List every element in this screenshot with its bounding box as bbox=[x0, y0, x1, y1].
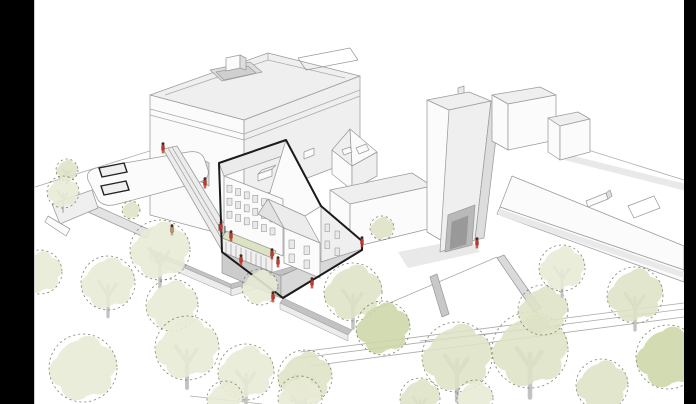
window bbox=[304, 260, 310, 269]
window bbox=[270, 228, 275, 235]
window bbox=[236, 202, 241, 209]
window bbox=[227, 211, 232, 218]
window bbox=[244, 218, 249, 225]
frame-right-bar bbox=[684, 0, 696, 404]
window bbox=[304, 246, 310, 255]
window bbox=[325, 224, 330, 232]
window bbox=[261, 225, 266, 232]
window bbox=[253, 195, 258, 202]
window bbox=[335, 231, 340, 239]
window bbox=[253, 221, 258, 228]
scene-canvas bbox=[0, 0, 696, 404]
window bbox=[289, 254, 295, 263]
window bbox=[236, 215, 241, 222]
window bbox=[253, 208, 258, 215]
window bbox=[227, 185, 232, 192]
window bbox=[244, 205, 249, 212]
window bbox=[325, 241, 330, 249]
window bbox=[227, 198, 232, 205]
window bbox=[289, 240, 295, 249]
window bbox=[335, 248, 340, 256]
frame-left-bar bbox=[0, 0, 34, 404]
window bbox=[236, 189, 241, 196]
window bbox=[244, 192, 249, 199]
model-viewport[interactable] bbox=[0, 0, 696, 404]
